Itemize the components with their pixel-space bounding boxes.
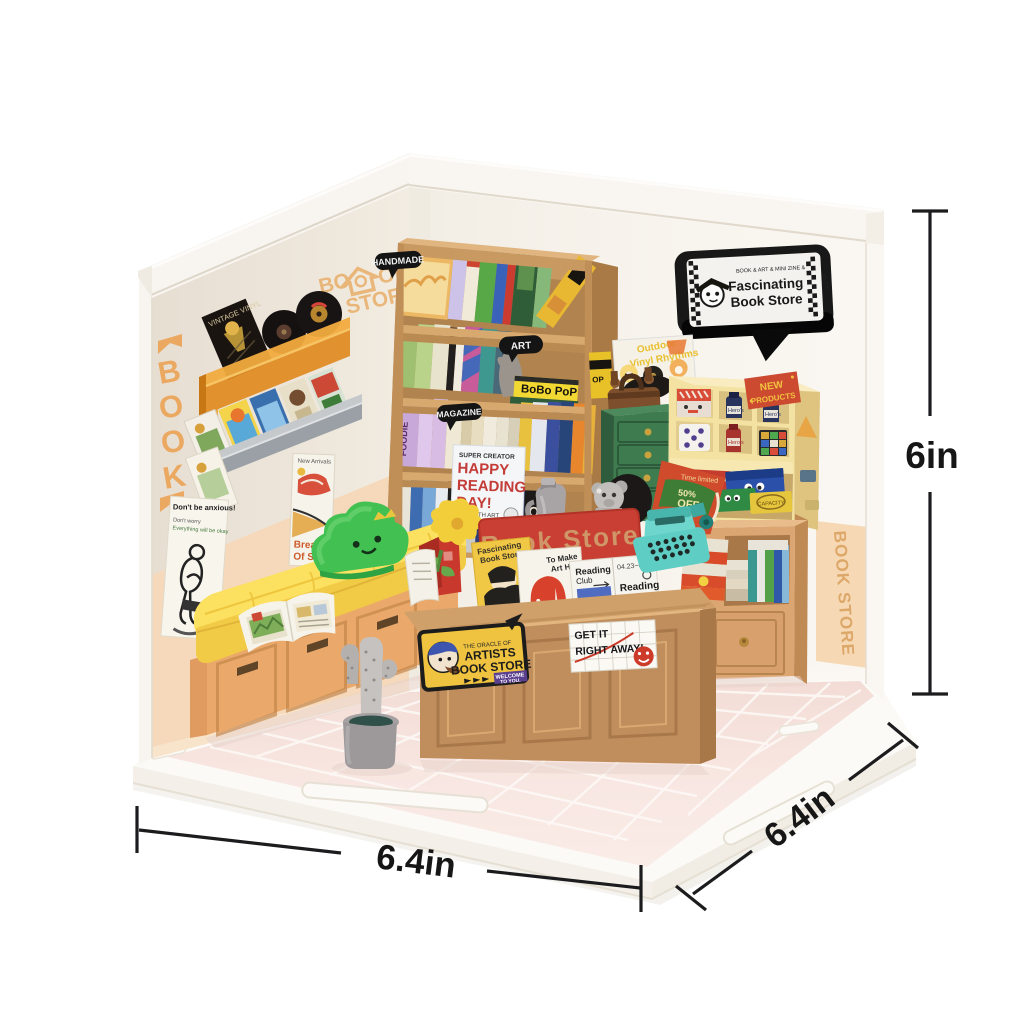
svg-text:ART: ART — [511, 340, 532, 352]
svg-text:6in: 6in — [905, 435, 958, 476]
svg-text:Club: Club — [576, 576, 594, 586]
svg-text:Don't be anxious!: Don't be anxious! — [173, 502, 236, 512]
svg-text:Hero's: Hero's — [728, 440, 744, 446]
svg-text:GET IT: GET IT — [574, 628, 609, 642]
svg-text:OP: OP — [592, 375, 605, 385]
svg-text:Hero's: Hero's — [765, 412, 781, 418]
svg-text:HAPPY: HAPPY — [457, 460, 509, 479]
svg-text:New Arrivals: New Arrivals — [298, 459, 332, 466]
svg-text:Hero's: Hero's — [728, 408, 744, 414]
